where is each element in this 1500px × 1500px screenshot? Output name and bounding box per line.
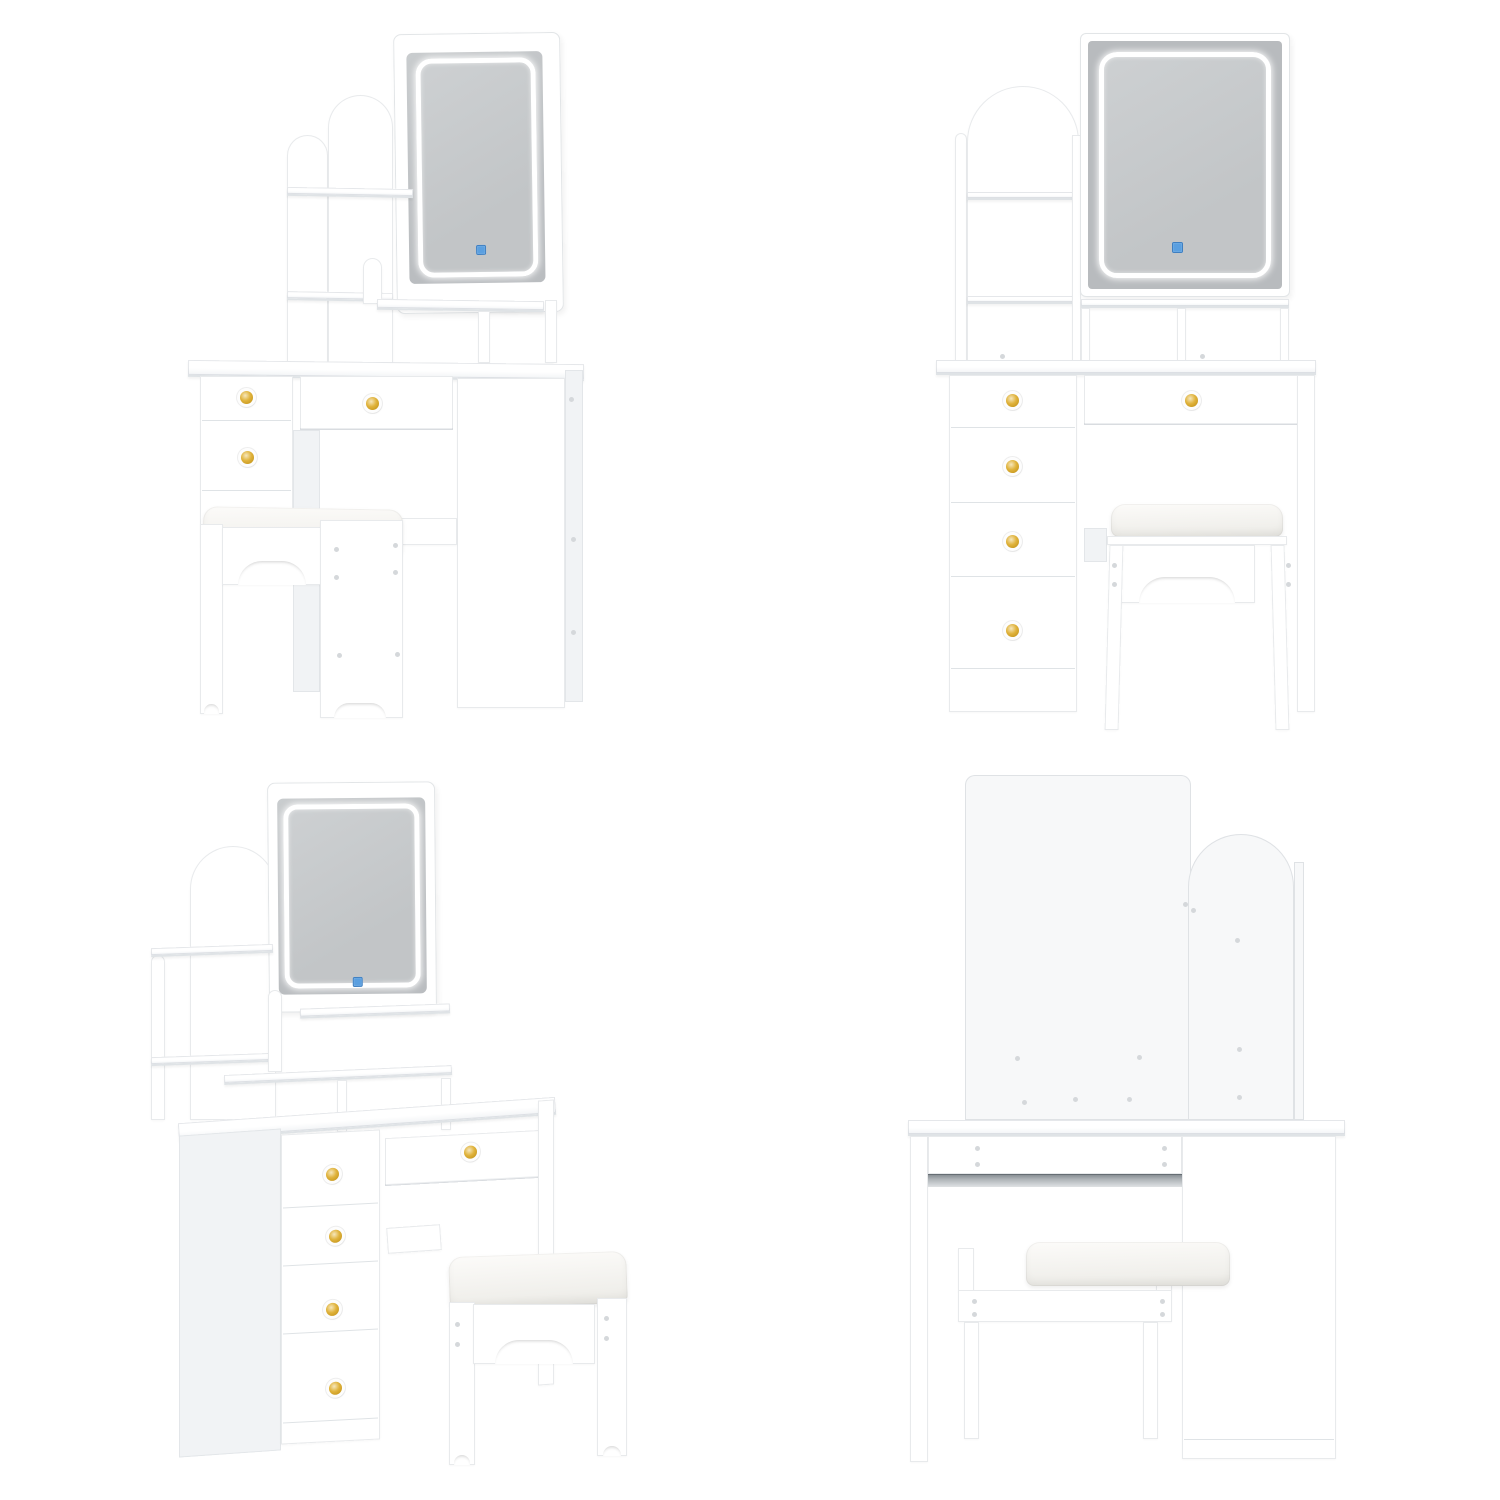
drawer-knob xyxy=(326,1303,339,1317)
screw-dot xyxy=(1127,1097,1132,1102)
hutch-cubby-divider xyxy=(1177,308,1186,361)
hutch-cubby-divider xyxy=(1280,308,1289,361)
drawer-seam xyxy=(951,576,1075,577)
stool-apron xyxy=(222,527,322,585)
desk-stretcher xyxy=(1084,528,1107,562)
screw-dot xyxy=(972,1299,977,1304)
back-panel-large xyxy=(965,775,1191,1120)
desk-leg-panel xyxy=(910,1136,928,1462)
back-panel-edge-strip xyxy=(1294,862,1304,1120)
desk-leg-panel xyxy=(1297,375,1315,712)
stool-leg-panel xyxy=(449,1302,475,1465)
screw-dot xyxy=(1286,563,1291,568)
screw-dot xyxy=(1235,938,1240,943)
drawer-knob xyxy=(1006,624,1019,637)
stool-arch-cutout xyxy=(495,1340,573,1364)
stool-side-panel xyxy=(320,520,403,718)
touch-sensor-icon xyxy=(353,977,363,987)
screw-dot xyxy=(1237,1047,1242,1052)
drawer-seam xyxy=(283,1329,378,1335)
screw-dot xyxy=(337,653,342,658)
desk-stretcher xyxy=(386,1224,442,1254)
drawer-knob xyxy=(240,391,253,404)
mirror-led-ring xyxy=(283,803,421,988)
hutch-arched-divider xyxy=(363,258,382,304)
screw-dot xyxy=(455,1322,460,1327)
stool-cushion xyxy=(1026,1242,1230,1286)
hutch-arch-panel xyxy=(328,95,393,365)
hutch-side-strip xyxy=(151,955,165,1120)
screw-dot xyxy=(975,1146,980,1151)
desk-top-back xyxy=(908,1120,1345,1136)
stool-leg xyxy=(1105,545,1124,730)
drawer-seam xyxy=(202,420,291,421)
drawer-knob xyxy=(1006,394,1019,407)
view-front xyxy=(750,0,1500,750)
drawer-seam xyxy=(283,1203,378,1209)
drawer-knob xyxy=(366,397,379,410)
wide-drawer xyxy=(1084,375,1299,425)
hutch-side-arch-panel xyxy=(287,135,328,365)
hutch-cubby-divider xyxy=(478,311,490,363)
drawer-knob xyxy=(326,1168,339,1182)
screw-dot xyxy=(1160,1299,1165,1304)
screw-dot xyxy=(571,630,576,635)
view-back xyxy=(750,750,1500,1500)
drawer-knob xyxy=(329,1229,342,1243)
stool-leg-panel xyxy=(200,524,223,714)
hutch-side-strip xyxy=(955,133,967,361)
screw-dot xyxy=(1073,1097,1078,1102)
screw-dot xyxy=(1112,582,1117,587)
desk-back-apron xyxy=(928,1136,1182,1174)
stool-cushion xyxy=(1111,504,1283,537)
drawer-column xyxy=(200,376,293,526)
screw-dot xyxy=(455,1342,460,1347)
screw-dot xyxy=(569,397,574,402)
screw-dot xyxy=(393,570,398,575)
drawer-knob xyxy=(329,1381,342,1395)
desk-top xyxy=(936,360,1316,375)
stool-side-frame xyxy=(958,1248,974,1292)
plinth-seam xyxy=(951,668,1075,669)
stool-cutout xyxy=(603,1446,621,1456)
desk-side-face xyxy=(565,370,583,702)
led-mirror xyxy=(1080,33,1290,297)
stool-cutout xyxy=(204,704,219,714)
drawer-seam xyxy=(202,490,291,491)
screw-dot xyxy=(1183,902,1188,907)
drawer-seam xyxy=(283,1261,378,1267)
drawer-knob xyxy=(1006,460,1019,473)
hutch-arched-divider xyxy=(268,990,282,1072)
drawer-knob xyxy=(241,451,254,464)
stool-cutout xyxy=(334,703,386,718)
hutch-arch-panel xyxy=(967,86,1079,361)
hutch-side-board xyxy=(545,300,557,363)
screw-dot xyxy=(393,543,398,548)
stool-cutout xyxy=(454,1455,470,1465)
hutch-shelf xyxy=(967,296,1079,304)
hutch-cubby-divider xyxy=(1081,308,1090,361)
screw-dot xyxy=(1162,1162,1167,1167)
stool-side-panel xyxy=(597,1298,627,1456)
hutch-cubby-shelf xyxy=(377,299,544,312)
back-panel-arch xyxy=(1188,834,1294,1120)
screw-dot xyxy=(334,575,339,580)
screw-dot xyxy=(1112,563,1117,568)
screw-dot xyxy=(1237,1095,1242,1100)
led-mirror xyxy=(393,32,564,314)
view-front-left-angle xyxy=(0,750,750,1500)
screw-dot xyxy=(1191,908,1196,913)
hutch-shelf xyxy=(967,192,1079,200)
screw-dot xyxy=(972,1312,977,1317)
drawer-seam xyxy=(951,502,1075,503)
screw-dot xyxy=(1015,1056,1020,1061)
stool-apron xyxy=(473,1304,595,1364)
drawer-slide-rail xyxy=(928,1174,1182,1187)
stool-seat-board xyxy=(1107,536,1287,545)
cabinet-back-panel xyxy=(1182,1136,1336,1459)
stool-arch-cutout xyxy=(238,561,306,585)
wide-drawer xyxy=(385,1130,541,1186)
stool-leg xyxy=(1271,545,1290,730)
screw-dot xyxy=(1160,1312,1165,1317)
screw-dot xyxy=(334,547,339,552)
screw-dot xyxy=(1022,1100,1027,1105)
screw-dot xyxy=(1286,582,1291,587)
screw-dot xyxy=(571,537,576,542)
screw-dot xyxy=(604,1336,609,1341)
desk-side-panel xyxy=(457,378,565,708)
stool-leg xyxy=(1143,1322,1158,1439)
drawer-knob xyxy=(1006,535,1019,548)
mirror-led-ring xyxy=(1099,52,1271,278)
touch-sensor-icon xyxy=(1172,242,1183,253)
desk-side-face xyxy=(179,1128,281,1457)
touch-sensor-icon xyxy=(476,245,486,255)
product-photo-collage xyxy=(0,0,1500,1500)
drawer-knob xyxy=(1185,394,1198,407)
screw-dot xyxy=(395,652,400,657)
hutch-cubby-shelf xyxy=(1081,299,1289,308)
screw-dot xyxy=(975,1162,980,1167)
screw-dot xyxy=(1162,1146,1167,1151)
drawer-knob xyxy=(464,1145,477,1159)
plinth-seam xyxy=(283,1418,378,1424)
plinth-seam xyxy=(1184,1439,1334,1440)
drawer-column xyxy=(949,375,1077,712)
screw-dot xyxy=(1137,1055,1142,1060)
view-front-right-angle xyxy=(0,0,750,750)
stool-arch-cutout xyxy=(1139,577,1235,603)
led-mirror xyxy=(267,781,437,1012)
stool-apron xyxy=(1119,545,1255,603)
screw-dot xyxy=(1000,354,1005,359)
wide-drawer xyxy=(300,376,453,430)
stool-leg xyxy=(964,1322,979,1439)
screw-dot xyxy=(604,1316,609,1321)
drawer-seam xyxy=(951,427,1075,428)
screw-dot xyxy=(1200,354,1205,359)
stool-cross-rail xyxy=(958,1290,1172,1322)
drawer-column xyxy=(281,1129,380,1444)
